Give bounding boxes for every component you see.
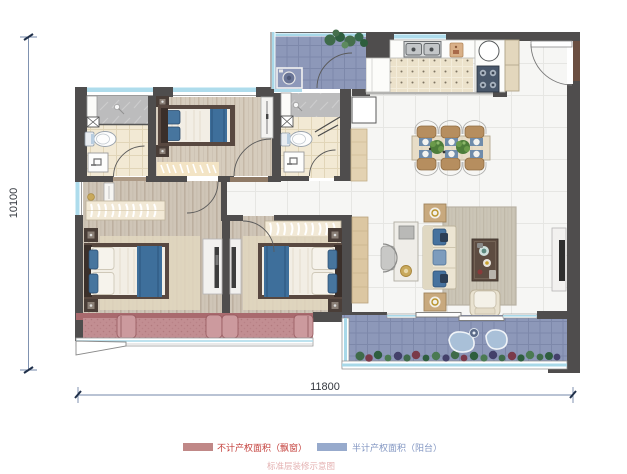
svg-text:10100: 10100: [8, 188, 20, 219]
svg-text:11800: 11800: [310, 381, 340, 393]
svg-text:标准层装修示意图: 标准层装修示意图: [267, 461, 335, 471]
svg-text:半计产权面积（阳台）: 半计产权面积（阳台）: [352, 442, 442, 453]
svg-text:不计产权面积（飘窗）: 不计产权面积（飘窗）: [217, 442, 307, 453]
